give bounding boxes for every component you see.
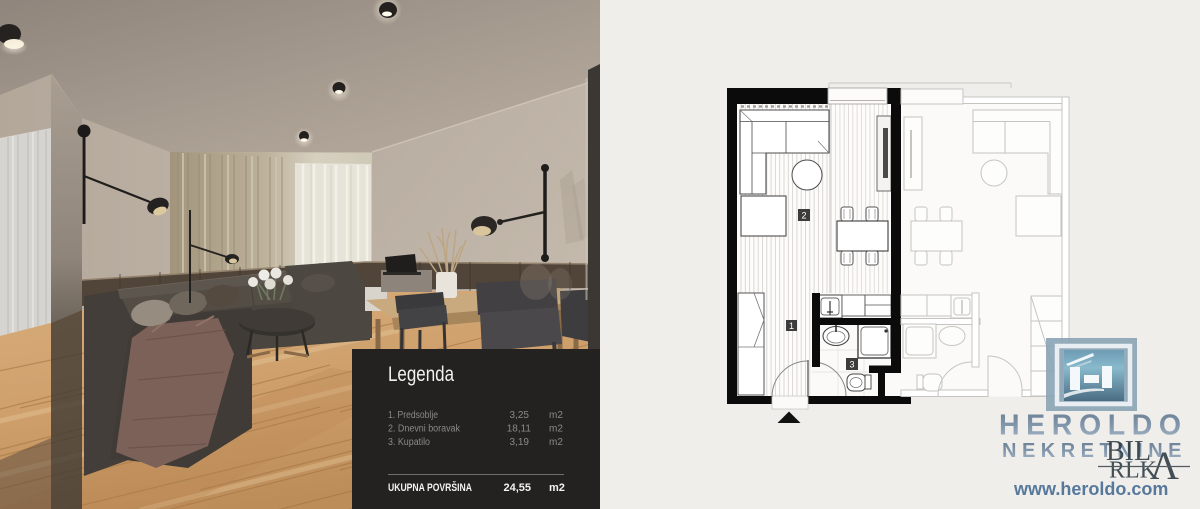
svg-text:m2: m2 xyxy=(549,424,563,435)
svg-text:3,25: 3,25 xyxy=(510,410,530,421)
svg-text:m2: m2 xyxy=(549,437,563,448)
svg-text:2. Dnevni boravak: 2. Dnevni boravak xyxy=(388,424,461,435)
svg-text:UKUPNA POVRŠINA: UKUPNA POVRŠINA xyxy=(388,481,472,494)
svg-text:3,19: 3,19 xyxy=(510,437,530,448)
svg-text:3. Kupatilo: 3. Kupatilo xyxy=(388,437,430,448)
svg-text:1: 1 xyxy=(789,321,794,331)
svg-text:www.heroldo.com: www.heroldo.com xyxy=(1013,479,1168,499)
svg-text:m2: m2 xyxy=(549,482,565,494)
svg-text:2: 2 xyxy=(801,211,806,221)
svg-text:18,11: 18,11 xyxy=(507,424,532,435)
svg-text:HEROLDO: HEROLDO xyxy=(999,410,1188,442)
svg-text:24,55: 24,55 xyxy=(503,482,531,494)
svg-text:Legenda: Legenda xyxy=(388,362,454,386)
svg-text:m2: m2 xyxy=(549,410,563,421)
svg-text:1. Predsoblje: 1. Predsoblje xyxy=(388,410,438,421)
svg-text:3: 3 xyxy=(849,360,854,370)
